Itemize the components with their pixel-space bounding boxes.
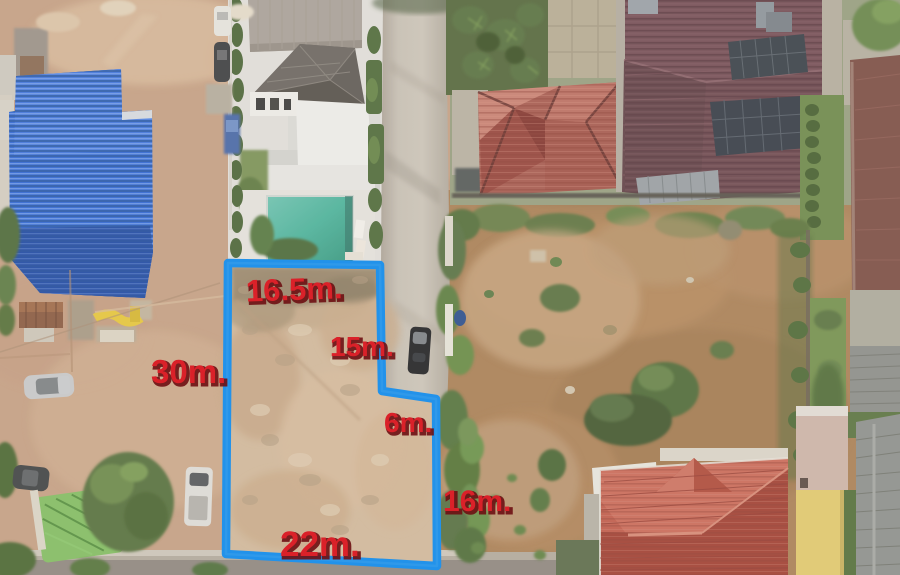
svg-text:22m.: 22m. [280,525,360,564]
svg-text:6m.: 6m. [384,407,432,438]
svg-text:15m.: 15m. [330,331,394,362]
svg-text:16m.: 16m. [443,485,511,518]
svg-text:16.5m.: 16.5m. [245,270,343,308]
svg-text:30m.: 30m. [151,353,226,390]
